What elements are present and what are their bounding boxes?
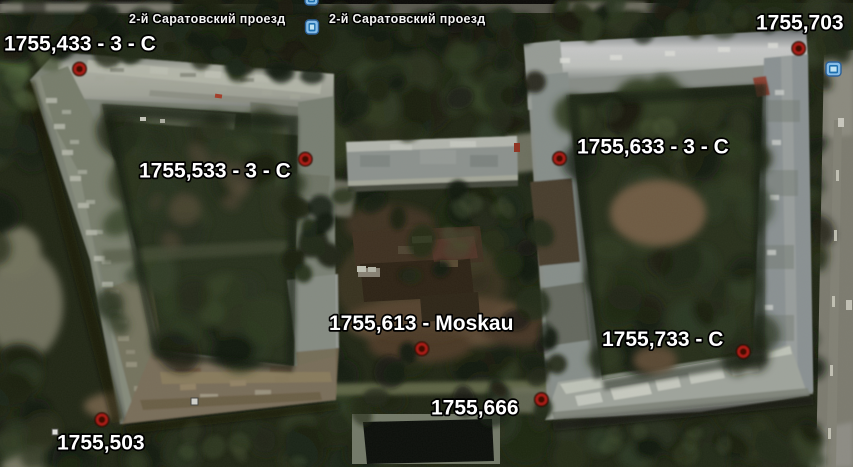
svg-text:1755,633 - 3 - С: 1755,633 - 3 - С [577,136,729,159]
svg-text:1755,703: 1755,703 [756,12,844,35]
svg-text:1755,533 - 3 - С: 1755,533 - 3 - С [139,160,291,183]
svg-text:2-й Саратовский проезд: 2-й Саратовский проезд [129,12,286,26]
svg-text:1755,433 - 3 - С: 1755,433 - 3 - С [4,33,156,56]
svg-text:1755,613 - Moskau: 1755,613 - Moskau [329,312,513,335]
svg-text:2-й Саратовский проезд: 2-й Саратовский проезд [329,12,486,26]
svg-text:1755,503: 1755,503 [57,432,145,455]
svg-text:1755,666: 1755,666 [431,397,519,420]
svg-text:1755,733 - С: 1755,733 - С [602,328,723,351]
